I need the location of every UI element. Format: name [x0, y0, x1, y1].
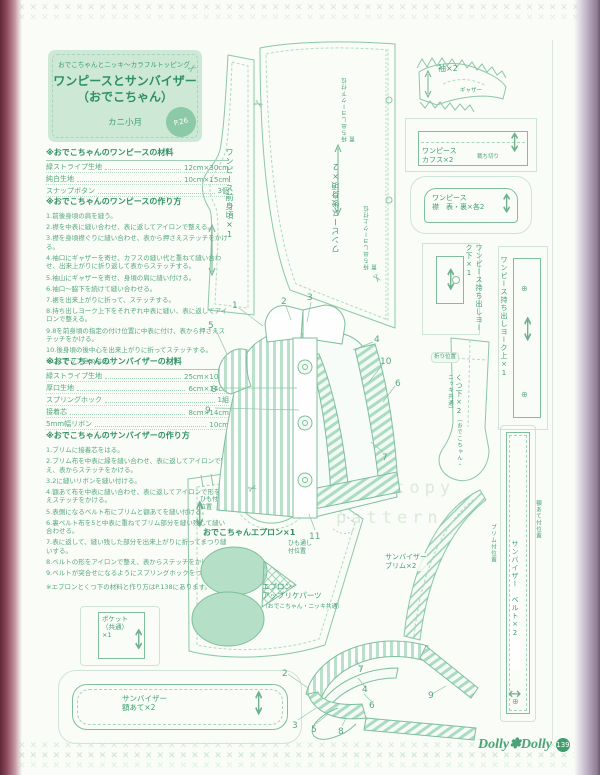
applique-label: エプロンアップリケパーツ（おでこちゃん・ニッキ共通）: [262, 582, 343, 611]
material-row: 厚口生地6cm×14cm: [46, 382, 229, 394]
book-spine: [0, 0, 22, 775]
yoke-lower-position-note: 持ち出しヨーク下付位置: [341, 72, 357, 142]
svg-text:6: 6: [395, 379, 401, 389]
cross-stitch-row: ✕✕✕✕✕✕✕✕✕✕✕✕✕✕✕✕✕✕✕✕✕✕✕✕✕✕✕✕✕✕✕✕✕✕✕✕✕✕✕✕…: [18, 13, 578, 23]
dress-howto-header: ※おでこちゃんのワンピースの作り方: [46, 196, 230, 209]
grain-arrow-icon: ↕: [508, 127, 521, 157]
yoke-upper-label: ワンピース持ち出しヨーク上×1: [499, 256, 509, 421]
svg-text:2: 2: [281, 297, 287, 307]
dress-illustration: 1 2 3 4 5 6 7 8 9 10 11: [203, 292, 405, 540]
snap-mark-icon: ⊕: [512, 697, 519, 706]
svg-text:10: 10: [380, 357, 392, 367]
svg-text:2: 2: [282, 669, 288, 679]
series-title: おでこちゃんとニッキ〜カラフルトッピング: [54, 59, 194, 69]
material-row: 緑ストライプ生地25cm×10cm: [46, 370, 229, 382]
forehead-position-note: 額あて付位置: [534, 500, 542, 560]
cross-stitch-row: ✕✕✕✕✕✕✕✕✕✕✕✕✕✕✕✕✕✕✕✕✕✕✕✕✕✕✕✕✕✕✕✕✕✕✕✕✕✕✕✕…: [18, 761, 574, 771]
page-number-badge: 139: [556, 738, 570, 752]
material-row: スプリングホック1組: [46, 394, 229, 406]
back-bodice-label: ワンピース後身頃×2: [330, 158, 341, 253]
cuff-cut-note: 裁ち切り: [477, 154, 499, 161]
yoke-upper-position-note: 持ち出しヨーク上付位置: [363, 200, 379, 270]
pocket-label: ポケット（共通）×1: [102, 615, 128, 639]
sock-fold-note: 折り位置: [431, 352, 459, 363]
svg-text:3: 3: [307, 293, 313, 303]
scanned-pattern-page: ✕✕✕✕✕✕✕✕✕✕✕✕✕✕✕✕✕✕✕✕✕✕✕✕✕✕✕✕✕✕✕✕✕✕✕✕✕✕✕✕…: [0, 0, 600, 775]
svg-text:6: 6: [369, 701, 375, 711]
snap-mark: [452, 276, 460, 284]
cross-stitch-border-top: ✕✕✕✕✕✕✕✕✕✕✕✕✕✕✕✕✕✕✕✕✕✕✕✕✕✕✕✕✕✕✕✕✕✕✕✕✕✕✕✕…: [18, 3, 578, 23]
howto-step: 4.袖口にギャザーを寄せ、カフスの縫い代と重ねて縫い合わせ、出来上がりに折り返し…: [46, 254, 230, 271]
brim-label: サンバイザーブリム×2: [385, 553, 427, 571]
svg-text:5: 5: [208, 321, 214, 331]
snap-mark-icon: ⊕: [521, 390, 528, 399]
svg-text:7: 7: [382, 453, 388, 463]
dress-materials-section: ※おでこちゃんのワンピースの材料 緑ストライプ生地12cm×30cm 純白生地1…: [46, 147, 229, 197]
magazine-logo: Dolly✽Dolly: [478, 736, 552, 753]
howto-step: 2.襟を中表に縫い合わせ、表に返してアイロンで整える。: [46, 223, 230, 232]
yoke-lower-label: ワンピース持ち出しヨーク下×1: [464, 244, 484, 332]
grain-arrow-icon: ↕: [500, 188, 513, 218]
material-row: 5mm幅リボン10cm: [46, 418, 229, 430]
apron-label: おでこちゃんエプロン×1: [203, 527, 295, 538]
svg-text:4: 4: [362, 685, 368, 695]
material-row: 接着芯8cm×14cm: [46, 406, 229, 418]
cuff-label: ワンピースカフス×2: [422, 147, 457, 165]
howto-step: 5.袖山にギャザーを寄せ、身頃の肩に縫い付ける。: [46, 274, 230, 283]
dress-materials-header: ※おでこちゃんのワンピースの材料: [46, 147, 229, 161]
visor-illustration: 2 3 4 5 6 7 8 9: [278, 616, 488, 756]
title-box: おでこちゃんとニッキ〜カラフルトッピング ワンピースとサンバイザー （おでこちゃ…: [48, 50, 202, 142]
sock-label: くつ下×2（おでこちゃん・ニッキ共通）: [446, 374, 464, 474]
grain-arrow-icon: ↕: [252, 685, 265, 723]
svg-text:5: 5: [311, 725, 317, 735]
collar-label: ワンピース襟 表・裏×各2: [432, 194, 484, 212]
svg-text:9: 9: [205, 406, 211, 416]
pattern-title-line1: ワンピースとサンバイザー: [52, 72, 198, 89]
brim-position-note: ブリム付位置: [489, 524, 497, 584]
pattern-title-line2: （おでこちゃん）: [52, 88, 198, 105]
grain-arrow-icon: ↕: [521, 311, 534, 349]
visor-materials-section: ※おでこちゃんのサンバイザーの材料 緑ストライプ生地25cm×10cm 厚口生地…: [46, 356, 229, 430]
svg-text:8: 8: [211, 385, 217, 395]
front-bodice-label: ワンピース前身頃×1: [224, 148, 235, 248]
sleeve-label: 袖×2: [438, 64, 458, 74]
svg-text:9: 9: [428, 691, 434, 701]
material-row: 緑ストライプ生地12cm×30cm: [46, 161, 229, 173]
sleeve-gather-note: ギャザー: [460, 88, 482, 95]
cross-stitch-row: ✕✕✕✕✕✕✕✕✕✕✕✕✕✕✕✕✕✕✕✕✕✕✕✕✕✕✕✕✕✕✕✕✕✕✕✕✕✕✕✕…: [18, 3, 578, 13]
page-fold-line: [552, 40, 553, 740]
howto-step: 1.前後身頃の肩を縫う。: [46, 212, 230, 221]
svg-text:8: 8: [338, 727, 344, 737]
svg-text:7: 7: [358, 665, 364, 675]
svg-text:1: 1: [232, 301, 238, 311]
grain-arrow-icon: ↕: [132, 623, 145, 655]
svg-text:4: 4: [374, 335, 380, 345]
page-edge-right: [574, 0, 600, 775]
belt-label: サンバイザー ベルト×2: [510, 540, 520, 670]
visor-materials-header: ※おでこちゃんのサンバイザーの材料: [46, 356, 229, 370]
material-row: 純白生地10cm×15cm: [46, 173, 229, 185]
forehead-label: サンバイザー額あて×2: [122, 694, 167, 713]
sleeve-pattern-outline: [413, 46, 513, 120]
svg-text:3: 3: [292, 721, 298, 731]
snap-mark-icon: ⊕: [521, 284, 528, 293]
howto-step: 3.襟を身頃襟ぐりに縫い合わせ、表から押さえステッチをかける。: [46, 234, 230, 251]
